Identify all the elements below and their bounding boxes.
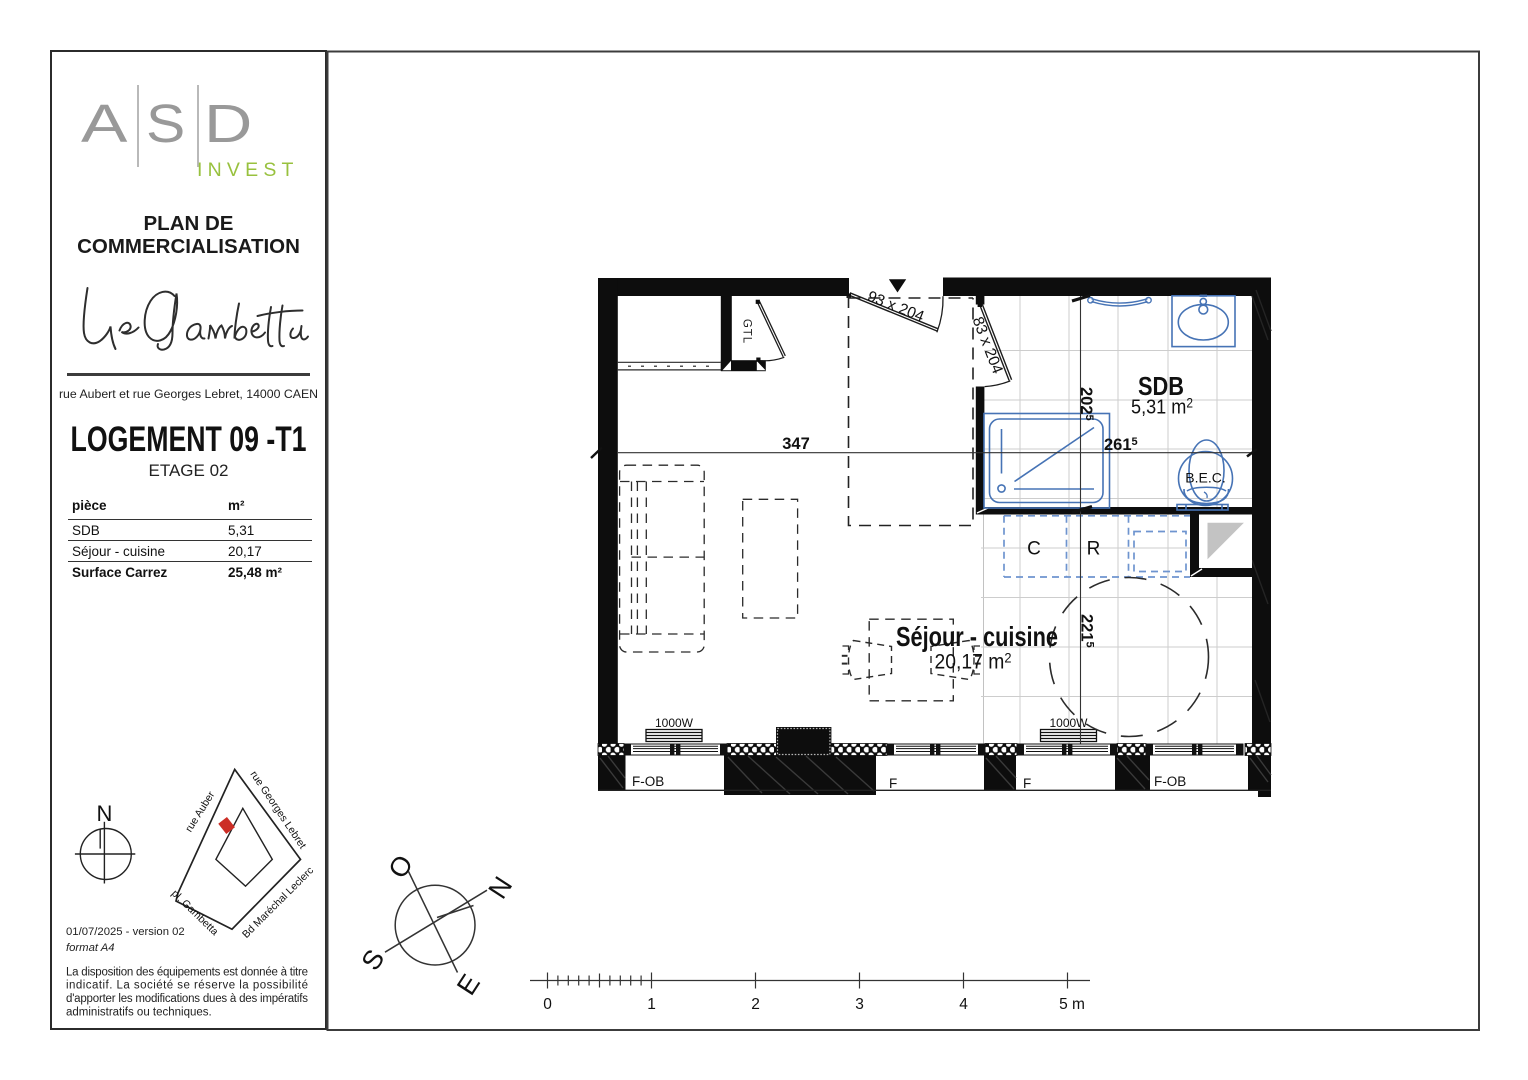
svg-text:1: 1 bbox=[647, 996, 656, 1013]
svg-text:O: O bbox=[383, 850, 420, 884]
svg-text:C: C bbox=[1027, 539, 1041, 560]
svg-text:F-OB: F-OB bbox=[1154, 774, 1186, 789]
svg-text:2615: 2615 bbox=[1104, 436, 1138, 454]
svg-text:3: 3 bbox=[855, 996, 864, 1013]
svg-text:R: R bbox=[1087, 539, 1101, 560]
svg-text:4: 4 bbox=[959, 996, 968, 1013]
svg-text:Séjour - cuisine: Séjour - cuisine bbox=[896, 621, 1058, 652]
svg-text:GTL: GTL bbox=[741, 319, 753, 344]
svg-text:S: S bbox=[355, 944, 390, 975]
svg-text:20,17 m2: 20,17 m2 bbox=[935, 650, 1012, 674]
svg-text:93 x 204: 93 x 204 bbox=[865, 288, 927, 326]
svg-text:5 m: 5 m bbox=[1059, 996, 1085, 1013]
svg-text:F: F bbox=[1023, 776, 1031, 791]
svg-text:F: F bbox=[889, 776, 897, 791]
svg-text:B.E.C.: B.E.C. bbox=[1185, 469, 1225, 485]
svg-text:1000W: 1000W bbox=[1049, 716, 1088, 730]
svg-text:E: E bbox=[451, 969, 486, 1000]
svg-text:2: 2 bbox=[751, 996, 760, 1013]
svg-text:0: 0 bbox=[543, 996, 552, 1013]
svg-text:5,31 m2: 5,31 m2 bbox=[1131, 396, 1193, 419]
svg-text:2025: 2025 bbox=[1077, 387, 1095, 421]
svg-text:F-OB: F-OB bbox=[632, 774, 664, 789]
svg-text:83 x 204: 83 x 204 bbox=[969, 315, 1006, 377]
svg-text:347: 347 bbox=[782, 435, 810, 453]
svg-text:1000W: 1000W bbox=[655, 716, 694, 730]
svg-text:N: N bbox=[483, 871, 519, 904]
